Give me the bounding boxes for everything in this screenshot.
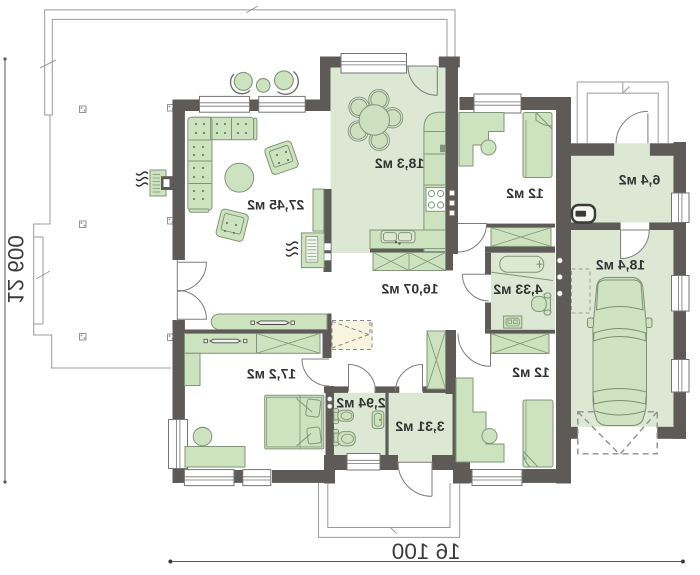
svg-text:4,33 м2: 4,33 м2 (493, 281, 542, 297)
svg-text:18,3 м2: 18,3 м2 (375, 155, 424, 171)
svg-text:16 100: 16 100 (392, 539, 461, 564)
svg-text:12 м2: 12 м2 (506, 185, 544, 201)
svg-text:2,94 м2: 2,94 м2 (336, 395, 385, 411)
svg-text:12 м2: 12 м2 (512, 364, 550, 380)
svg-text:17,2 м2: 17,2 м2 (247, 366, 296, 382)
svg-text:3,31 м2: 3,31 м2 (395, 418, 444, 434)
svg-text:18,4 м2: 18,4 м2 (596, 256, 645, 272)
svg-text:27,45 м2: 27,45 м2 (247, 196, 304, 212)
svg-text:12 600: 12 600 (3, 235, 28, 304)
svg-text:6,4 м2: 6,4 м2 (619, 172, 661, 188)
svg-text:16,07 м2: 16,07 м2 (381, 280, 438, 296)
